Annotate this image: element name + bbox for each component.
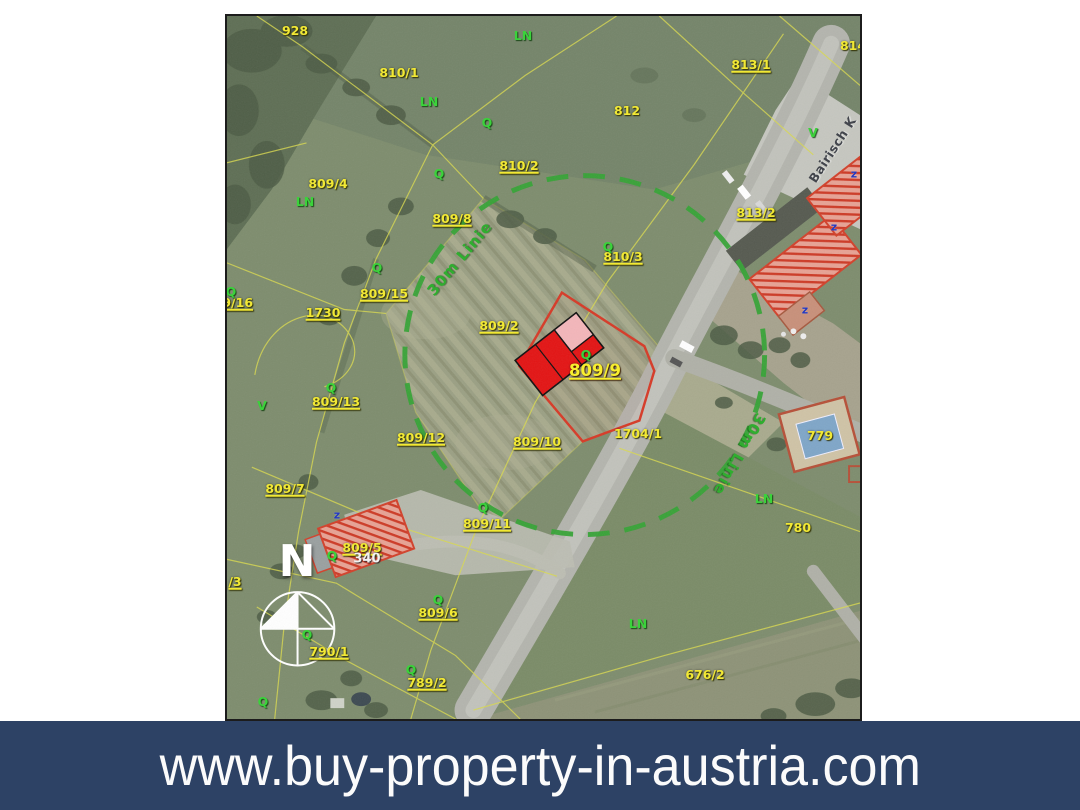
- land-use-code: Q: [434, 168, 445, 181]
- survey-mark: z: [334, 510, 340, 521]
- parcel-number-label: 809/13: [312, 396, 360, 409]
- parcel-number-label: /3: [228, 576, 241, 589]
- land-use-code: Q: [603, 241, 614, 254]
- parcel-number-label: 813/1: [731, 59, 770, 72]
- parcel-number-label: 1704/1: [614, 428, 662, 441]
- parcel-number-label: 789/2: [407, 677, 446, 690]
- parcel-number-label: 814: [840, 40, 860, 53]
- land-use-code: Q: [478, 502, 489, 515]
- land-use-code: Q: [406, 664, 417, 677]
- parcel-number-label: 809/12: [397, 432, 445, 445]
- parcel-number-label: 813/2: [736, 207, 775, 220]
- land-use-code: LN: [755, 493, 773, 506]
- land-use-code: Q: [581, 349, 592, 362]
- parcel-number-label: 790/1: [309, 646, 348, 659]
- website-url: www.buy-property-in-austria.com: [159, 733, 920, 798]
- target-parcel-label: 809/9: [569, 363, 621, 380]
- parcel-number-label: 812: [614, 105, 640, 118]
- land-use-code: Q: [302, 629, 313, 642]
- parcel-number-label: 810/2: [499, 160, 538, 173]
- land-use-code: Q: [326, 382, 337, 395]
- land-use-code: LN: [514, 30, 532, 43]
- website-banner: www.buy-property-in-austria.com: [0, 721, 1080, 810]
- parcel-number-label: 809/15: [360, 288, 408, 301]
- land-use-code: Q: [433, 594, 444, 607]
- parcel-number-label: 810/1: [379, 67, 418, 80]
- land-use-code: V: [257, 400, 267, 413]
- survey-mark: z: [851, 169, 857, 180]
- aerial-photo: 928810/1812813/1814810/2809/4809/8813/28…: [227, 16, 860, 719]
- land-use-code: Q: [258, 696, 269, 709]
- land-use-code: Q: [482, 117, 493, 130]
- land-use-code: LN: [629, 618, 647, 631]
- parcel-number-label: 809/11: [463, 518, 511, 531]
- parcel-number-label: 809/10: [513, 436, 561, 449]
- land-use-code: Q: [227, 286, 236, 299]
- radius-line-label: 30m Linie: [710, 410, 767, 497]
- parcel-number-label: 809/7: [265, 483, 304, 496]
- land-use-code: Q: [372, 262, 383, 275]
- land-use-code: V: [808, 127, 818, 140]
- parcel-number-label: 809/8: [432, 213, 471, 226]
- page: 928810/1812813/1814810/2809/4809/8813/28…: [0, 0, 1080, 810]
- radius-line-label: 30m Linie: [425, 219, 495, 299]
- parcel-number-label: 676/2: [685, 669, 724, 682]
- parcel-number-label: 809/2: [479, 320, 518, 333]
- parcel-number-label: 809/4: [308, 178, 347, 191]
- parcel-number-label: 928: [282, 25, 308, 38]
- parcel-number-label: 779: [807, 430, 833, 443]
- survey-mark: z: [831, 222, 837, 233]
- land-use-code: Q: [327, 550, 338, 563]
- land-use-code: LN: [296, 196, 314, 209]
- cadastral-map: 928810/1812813/1814810/2809/4809/8813/28…: [225, 14, 862, 721]
- land-use-code: LN: [420, 96, 438, 109]
- parcel-number-label: 780: [785, 522, 811, 535]
- north-letter: N: [279, 540, 316, 584]
- parcel-number-label: 809/6: [418, 607, 457, 620]
- survey-mark: z: [802, 305, 808, 316]
- parcel-number-label: 1730: [306, 307, 341, 320]
- map-label-layer: 928810/1812813/1814810/2809/4809/8813/28…: [227, 16, 860, 719]
- house-number-label: 340: [353, 553, 380, 566]
